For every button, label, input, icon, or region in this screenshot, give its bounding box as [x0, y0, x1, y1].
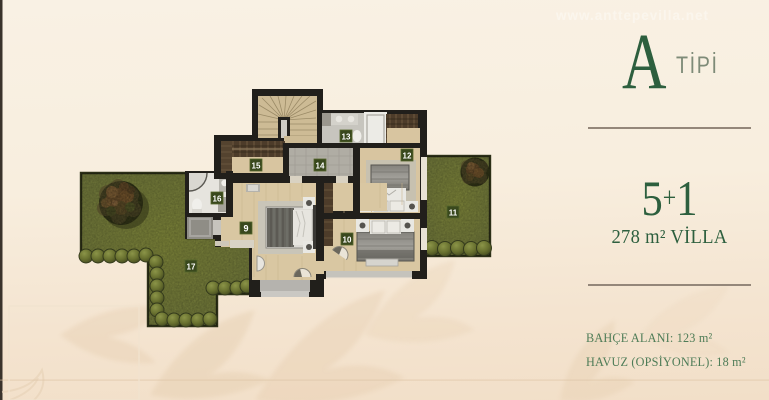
- svg-text:14: 14: [316, 162, 325, 171]
- svg-text:17: 17: [187, 263, 196, 272]
- svg-text:12: 12: [403, 152, 412, 161]
- svg-text:11: 11: [449, 209, 458, 218]
- svg-text:9: 9: [243, 224, 248, 234]
- svg-text:10: 10: [343, 236, 352, 245]
- svg-text:13: 13: [342, 133, 351, 142]
- svg-text:16: 16: [213, 195, 222, 204]
- svg-text:15: 15: [252, 162, 261, 171]
